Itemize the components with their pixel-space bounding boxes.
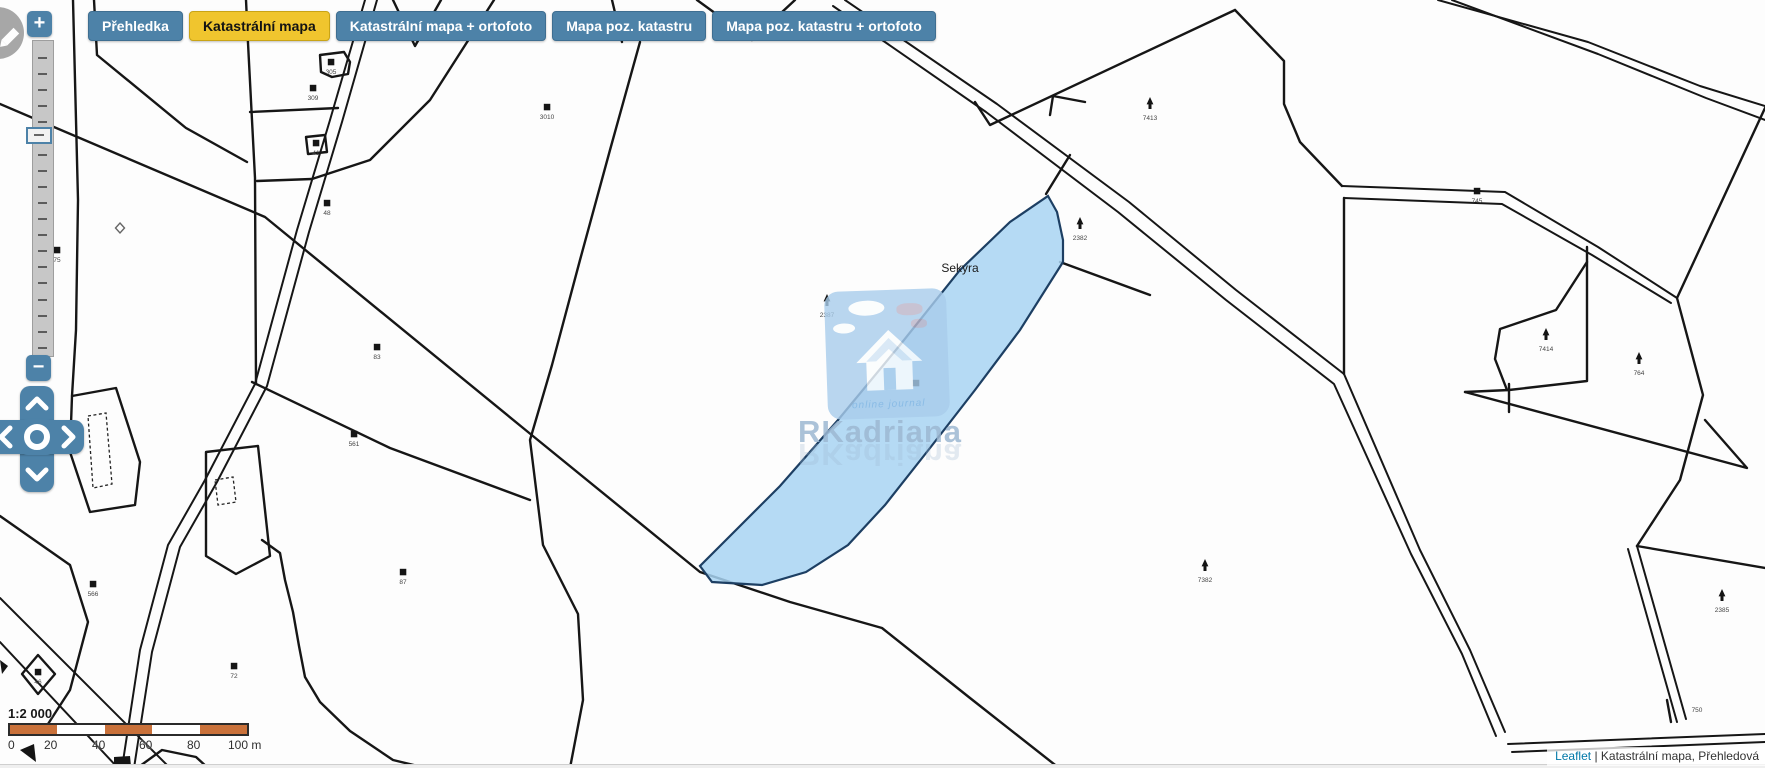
tab-3[interactable]: Katastrální mapa + ortofoto: [336, 11, 546, 41]
parcel-point-marker: [400, 569, 407, 576]
scale-tick-label: 80: [187, 738, 200, 752]
parcel-number: 48: [323, 210, 331, 217]
parcel-point-marker: [54, 247, 61, 254]
chevron-left-icon: [0, 424, 14, 450]
parcel-boundary-line: [0, 516, 88, 724]
parcel-point-marker: [324, 200, 331, 207]
zoom-tick[interactable]: [38, 202, 47, 204]
zoom-tick[interactable]: [38, 266, 47, 268]
parcel-number: 2382: [1073, 235, 1088, 242]
parcel-road-line: [1342, 186, 1677, 298]
map-bottom-edge: [0, 764, 1765, 768]
pan-left-button[interactable]: [0, 422, 20, 452]
tab-4[interactable]: Mapa poz. katastru: [552, 11, 706, 41]
zoom-out-button[interactable]: −: [26, 355, 51, 381]
parcel-number: 566: [88, 591, 99, 598]
tab-2[interactable]: Katastrální mapa: [189, 11, 330, 41]
parcel-road-line: [1452, 0, 1765, 120]
scale-tick-label: 0: [8, 738, 15, 752]
parcel-point-marker: [351, 431, 358, 438]
parcel-boundary-line: [1235, 10, 1342, 186]
scale-tick-label: 60: [139, 738, 152, 752]
parcel-number: 7382: [1198, 577, 1213, 584]
edit-pencil-button[interactable]: [0, 7, 24, 59]
scale-segment: [200, 725, 247, 734]
map-solid-shape: [0, 660, 8, 674]
watermark-logo: online journal: [824, 288, 950, 420]
parcel-boundary-line: [250, 108, 338, 112]
parcel-number: 87: [399, 579, 407, 586]
zoom-tick[interactable]: [38, 73, 47, 75]
parcel-boundary-line: [530, 42, 640, 768]
scale-segment: [10, 725, 57, 734]
parcel-boundary-line: [246, 0, 256, 384]
tree-icon: [1636, 352, 1643, 364]
zoom-tick[interactable]: [38, 218, 47, 220]
parcel-boundary-line: [72, 0, 78, 396]
parcel-number: 764: [1634, 370, 1645, 377]
parcel-point-marker: [328, 59, 335, 66]
parcel-number: 561: [349, 441, 360, 448]
parcel-road-line: [1508, 734, 1765, 744]
parcel-number: 41: [312, 150, 320, 157]
zoom-tick[interactable]: [38, 105, 47, 107]
pan-center-button[interactable]: [19, 419, 55, 455]
pan-right-button[interactable]: [54, 422, 84, 452]
zoom-tick[interactable]: [38, 234, 47, 236]
parcel-point-marker: [310, 85, 317, 92]
zoom-tick[interactable]: [38, 331, 47, 333]
parcel-boundary-line: [1637, 546, 1765, 568]
scale-bar: [8, 723, 249, 736]
zoom-tick[interactable]: [38, 57, 47, 59]
chevron-down-icon: [24, 466, 50, 484]
parcel-number: 75: [53, 257, 61, 264]
tree-icon: [1077, 217, 1084, 229]
parcel-road-line: [1628, 549, 1677, 722]
parcel-boundary-line: [1495, 262, 1587, 390]
watermark-brand: RKadriana RKadriana: [798, 414, 998, 472]
scale-tick-label: 20: [44, 738, 57, 752]
place-label: Sekyra: [941, 261, 979, 275]
map-scale: 1:2 000 020406080100 m: [8, 706, 268, 752]
parcel-number: 46: [34, 679, 42, 686]
survey-diamond-marker: [116, 223, 125, 233]
scale-segment: [105, 725, 152, 734]
tree-icon: [1719, 589, 1726, 601]
attribution-text: | Katastrální mapa, Přehledová: [1591, 749, 1759, 763]
parcel-number: 745: [1472, 198, 1483, 205]
scale-tick-label: 100 m: [228, 738, 261, 752]
parcel-number: 72: [230, 673, 238, 680]
parcel-number: 7413: [1143, 115, 1158, 122]
pencil-icon: [0, 7, 24, 59]
zoom-tick[interactable]: [38, 89, 47, 91]
zoom-tick[interactable]: [38, 186, 47, 188]
parcel-boundary-line: [1465, 392, 1747, 468]
tree-icon: [1147, 97, 1154, 109]
parcel-point-marker: [35, 669, 42, 676]
parcel-point-marker: [313, 140, 320, 147]
map-application: { "toolbar": { "tabs": [ {"label": "Přeh…: [0, 0, 1765, 768]
scale-segment: [152, 725, 199, 734]
zoom-tick[interactable]: [38, 154, 47, 156]
parcel-boundary-line: [1637, 108, 1765, 546]
parcel-road-line: [1344, 198, 1671, 303]
parcel-road-line: [1637, 546, 1686, 719]
zoom-level-indicator[interactable]: [26, 127, 52, 144]
watermark-tagline: online journal: [828, 397, 950, 412]
scale-ratio: 1:2 000: [8, 706, 268, 721]
attribution: Leaflet | Katastrální mapa, Přehledová: [1547, 747, 1765, 766]
parcel-point-marker: [90, 581, 97, 588]
pan-down-button[interactable]: [22, 460, 52, 490]
parcel-number: 3010: [540, 114, 555, 121]
parcel-number: 305: [326, 69, 337, 76]
tree-icon: [1202, 559, 1209, 571]
parcel-boundary-line: [975, 10, 1235, 125]
tab-1[interactable]: Přehledka: [88, 11, 183, 41]
tab-5[interactable]: Mapa poz. katastru + ortofoto: [712, 11, 936, 41]
zoom-tick[interactable]: [38, 299, 47, 301]
parcel-boundary-line: [206, 446, 270, 574]
zoom-tick[interactable]: [38, 170, 47, 172]
zoom-tick[interactable]: [38, 282, 47, 284]
parcel-number: 2385: [1715, 607, 1730, 614]
building-dashed-outline: [88, 413, 112, 488]
leaflet-link[interactable]: Leaflet: [1555, 749, 1591, 763]
parcel-point-marker: [374, 344, 381, 351]
chevron-up-icon: [24, 394, 50, 412]
pan-center-ring-icon: [24, 424, 50, 450]
cloud-icon: [848, 300, 885, 316]
zoom-in-button[interactable]: +: [27, 11, 52, 37]
scale-numbers: 020406080100 m: [8, 738, 268, 752]
parcel-boundary-line: [1050, 96, 1085, 115]
parcel-road-line: [122, 0, 365, 768]
scale-tick-label: 40: [92, 738, 105, 752]
house-icon: [849, 327, 929, 396]
zoom-tick[interactable]: [38, 315, 47, 317]
parcel-boundary-line: [1667, 700, 1671, 722]
parcel-road-line: [1438, 0, 1765, 106]
parcel-number: 309: [308, 95, 319, 102]
zoom-tick[interactable]: [38, 121, 47, 123]
worldmap-decoration: [896, 303, 922, 316]
tree-icon: [1543, 328, 1550, 340]
parcel-number: 7414: [1539, 346, 1554, 353]
pan-up-button[interactable]: [22, 388, 52, 418]
zoom-tick[interactable]: [38, 250, 47, 252]
layer-tabbar: PřehledkaKatastrální mapaKatastrální map…: [88, 11, 936, 41]
zoom-slider-track[interactable]: [32, 40, 54, 357]
chevron-right-icon: [60, 424, 78, 450]
parcel-point-marker: [231, 663, 238, 670]
parcel-boundary-line: [1060, 262, 1150, 295]
parcel-point-marker: [1474, 188, 1481, 195]
parcel-number: 750: [1692, 707, 1703, 714]
parcel-point-marker: [544, 104, 551, 111]
zoom-tick[interactable]: [38, 347, 47, 349]
scale-segment: [57, 725, 104, 734]
parcel-number: 83: [373, 354, 381, 361]
